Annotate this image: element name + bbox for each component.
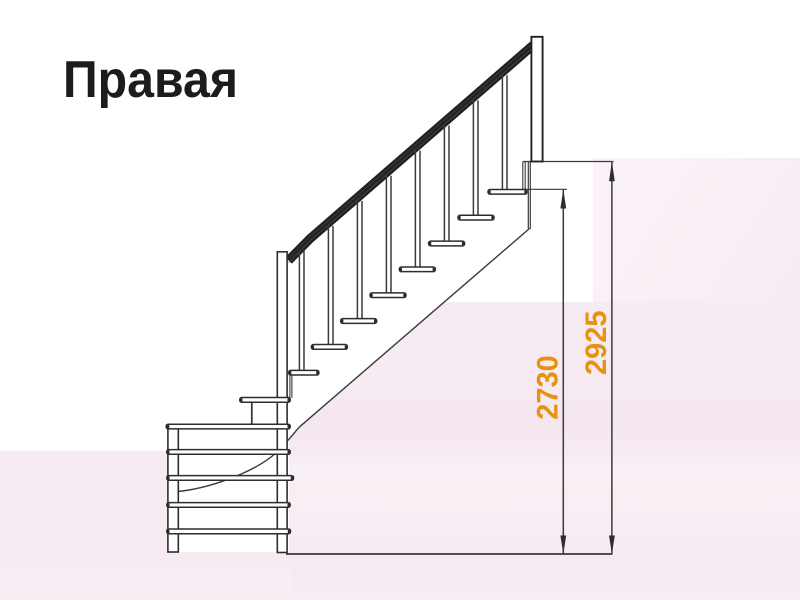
svg-text:Правая: Правая [63,50,238,108]
svg-text:2730: 2730 [532,355,565,420]
svg-text:2925: 2925 [580,311,613,376]
